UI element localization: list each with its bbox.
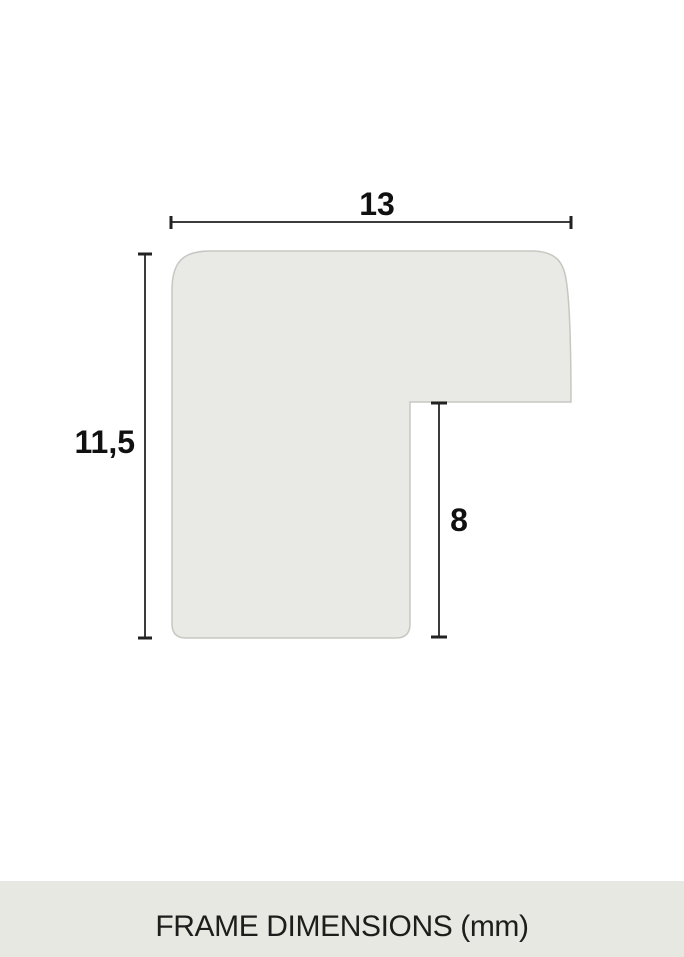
rabbet-depth-dimension-label: 8: [444, 504, 474, 536]
frame-dimension-diagram: 13 11,5 8 FRAME DIMENSIONS (mm): [0, 0, 684, 957]
width-dimension-label: 13: [337, 188, 417, 220]
footer-bar: FRAME DIMENSIONS (mm): [0, 881, 684, 957]
frame-profile-shape: [172, 251, 571, 638]
footer-caption: FRAME DIMENSIONS (mm): [0, 912, 684, 942]
height-dimension-line: [138, 254, 152, 638]
height-dimension-label: 11,5: [41, 426, 135, 458]
profile-diagram-canvas: [0, 0, 684, 957]
